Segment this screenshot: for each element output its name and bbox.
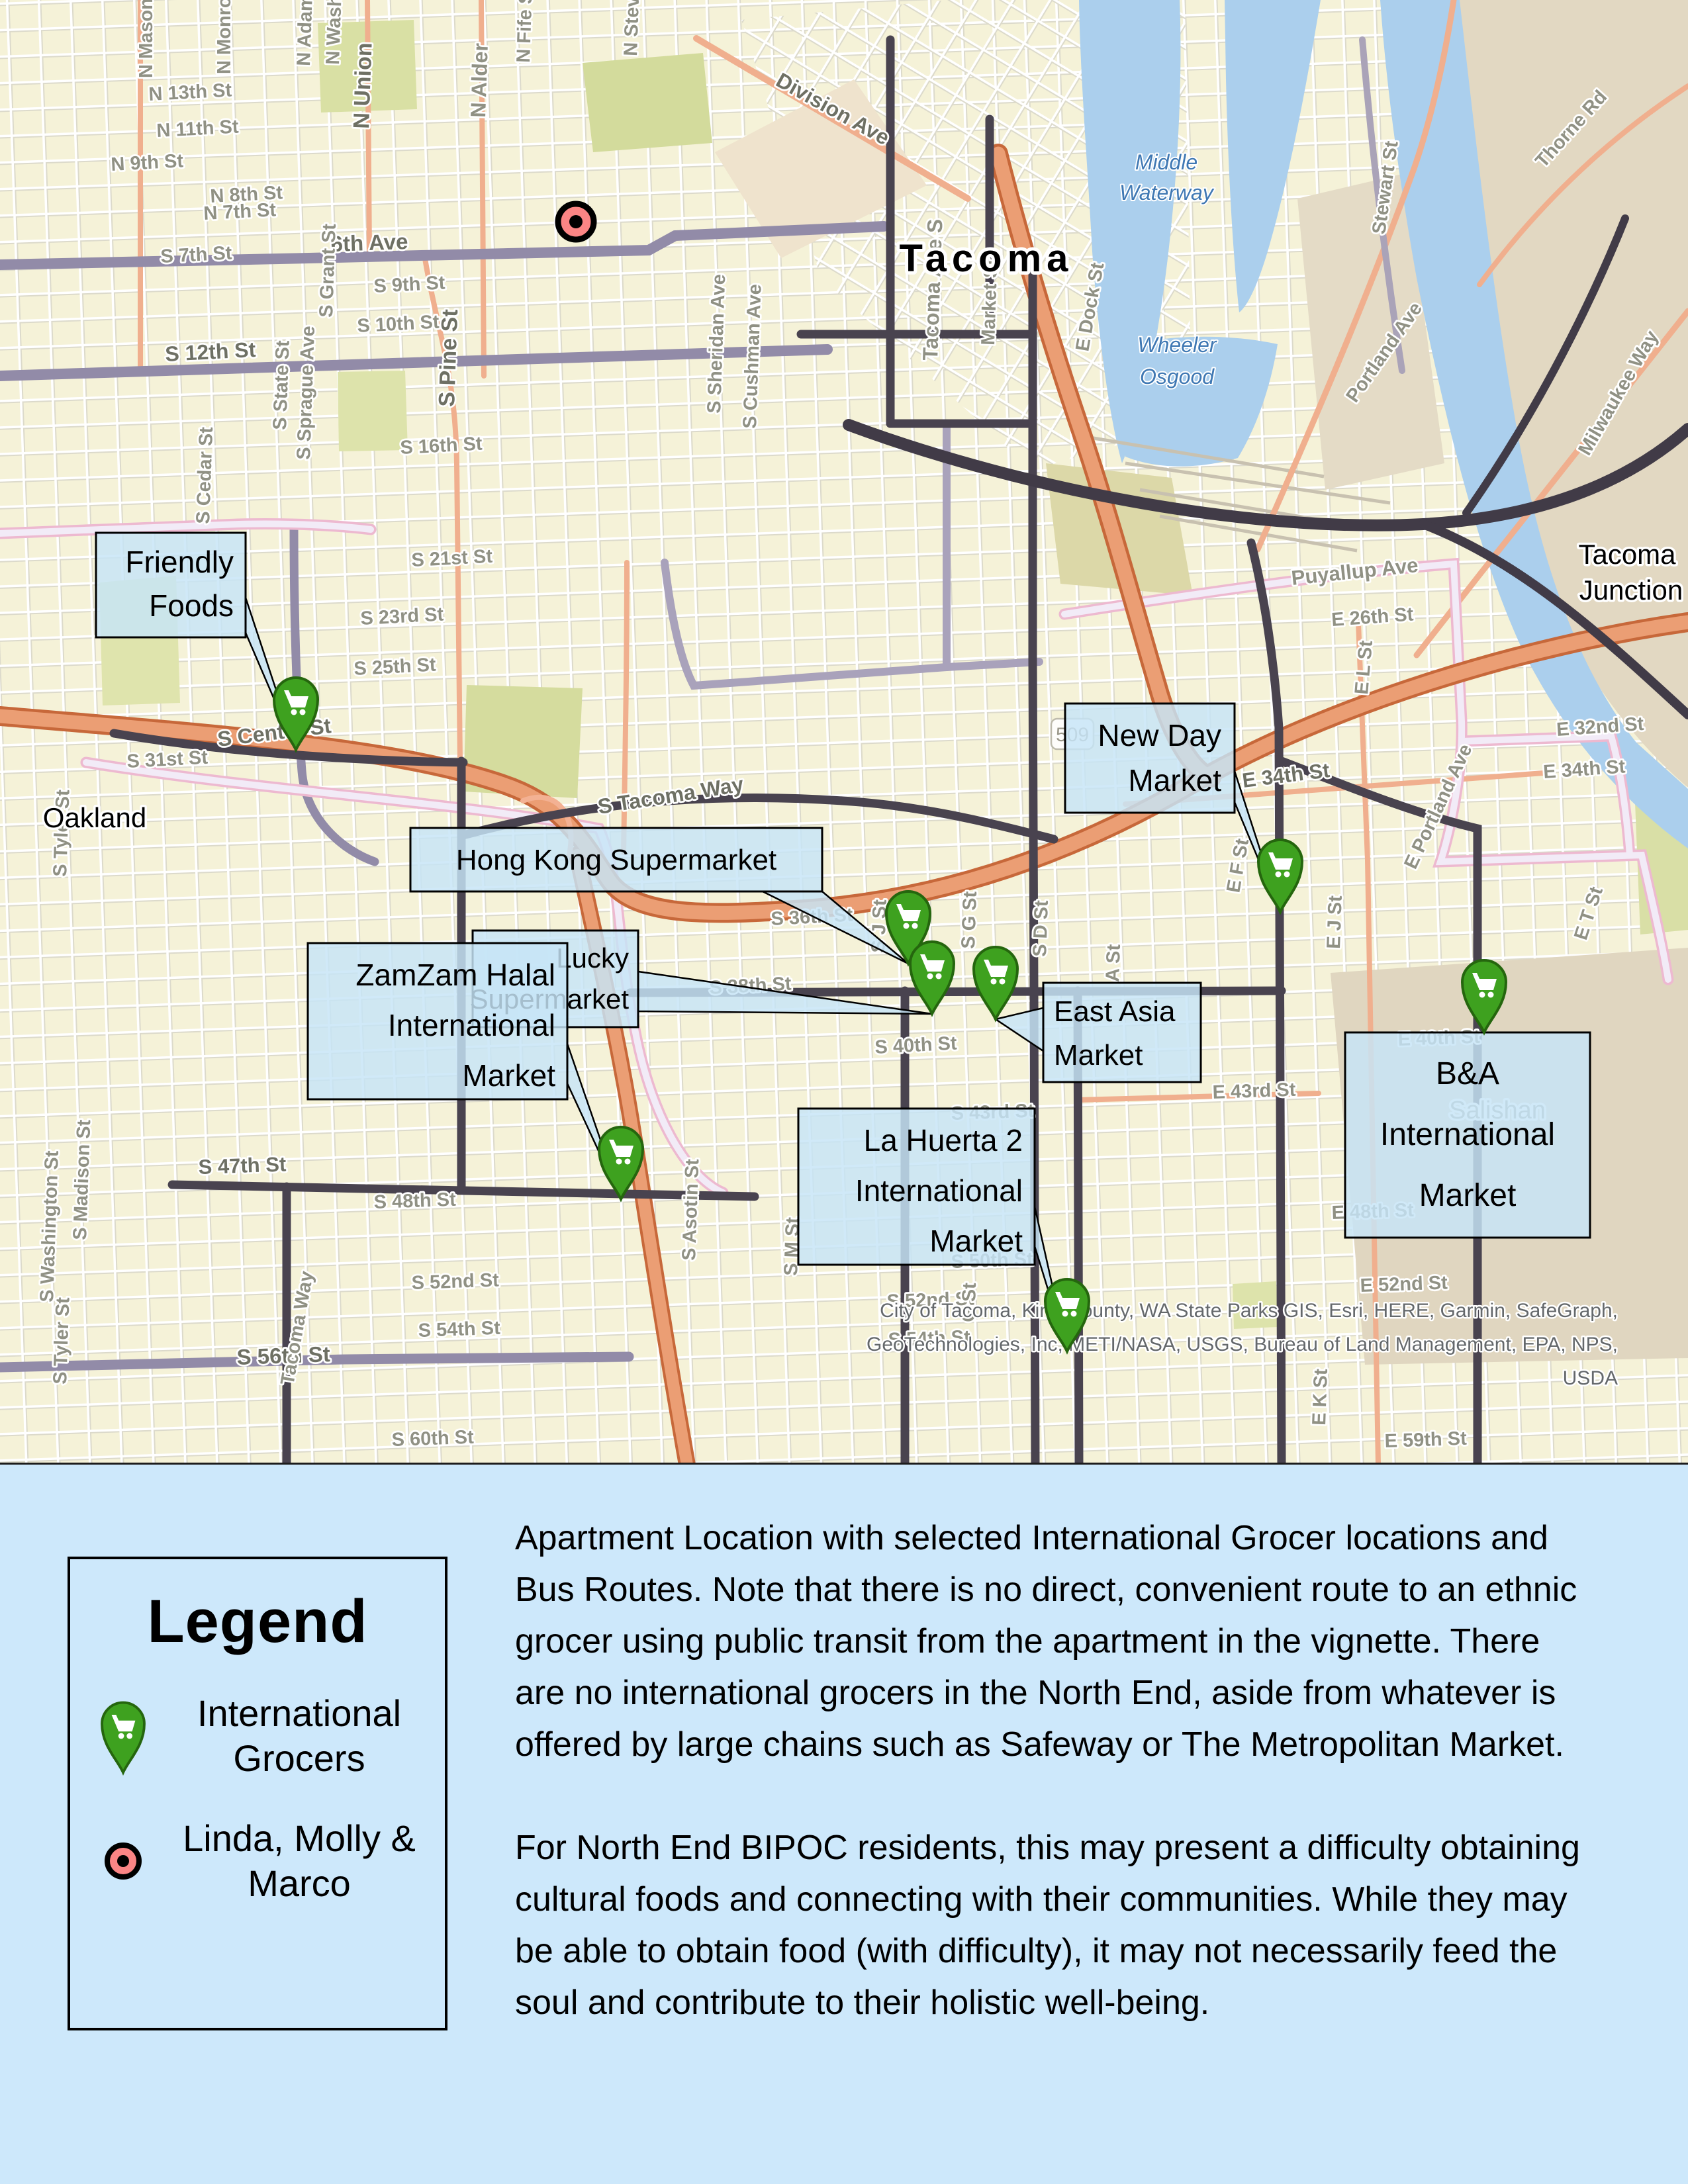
info-panel: Legend International Grocers Linda, Moll…: [0, 1465, 1688, 2182]
street-label: S G St: [958, 891, 981, 949]
caption-text: Apartment Location with selected Interna…: [515, 1512, 1587, 2080]
street-label: E J St: [1323, 895, 1346, 949]
street-label: E K St: [1309, 1368, 1332, 1426]
legend-item-label: International Grocers: [176, 1691, 422, 1782]
callout-label: Market: [1054, 1039, 1143, 1071]
street-label: E 43rd St: [1212, 1079, 1296, 1103]
street-label: S Grant St: [316, 223, 340, 318]
attribution-line: USDA: [1563, 1367, 1618, 1389]
callout-label: La Huerta 2: [864, 1123, 1023, 1158]
street-label: N Monroe: [214, 0, 235, 74]
callout-label: Market: [929, 1224, 1023, 1258]
street-label: N 7th St: [203, 199, 277, 224]
street-label: S 54th St: [418, 1318, 500, 1342]
apartment-marker-icon: [101, 1839, 145, 1883]
map-canvas[interactable]: 509 N 13th StN 11th StN 9th StN 8th StN …: [0, 0, 1688, 1465]
callout-label: New Day: [1098, 718, 1221, 752]
street-label: S 31st St: [126, 747, 209, 772]
street-label: S Madison St: [70, 1119, 95, 1240]
street-label: S 7th St: [160, 242, 233, 267]
street-label: S Asotin St: [679, 1158, 703, 1261]
street-label: N 11th St: [156, 116, 240, 142]
water-label: Wheeler: [1137, 333, 1217, 357]
callout-label: International: [855, 1173, 1023, 1208]
street-label: N Alder: [466, 42, 492, 118]
street-label: S 48th St: [373, 1189, 456, 1213]
caption-paragraph-2: For North End BIPOC residents, this may …: [515, 1822, 1587, 2028]
street-label: S State St: [269, 340, 294, 430]
attribution-line: GeoTechnologies, Inc, METI/NASA, USGS, B…: [867, 1334, 1618, 1355]
street-label: S 10th St: [357, 312, 440, 337]
callout-label: International: [388, 1008, 555, 1042]
callout-label: East Asia: [1054, 995, 1176, 1028]
street-label: 6th Ave: [330, 229, 408, 256]
legend-item-label: Linda, Molly & Marco: [176, 1816, 422, 1907]
callout-label: B&A: [1436, 1056, 1499, 1091]
place-label: Oakland: [43, 802, 146, 833]
street-label: E 59th St: [1384, 1428, 1467, 1452]
caption-paragraph-1: Apartment Location with selected Interna…: [515, 1512, 1587, 1770]
street-label: S Cedar St: [193, 426, 217, 524]
report-page: 509 N 13th StN 11th StN 9th StN 8th StN …: [0, 0, 1688, 2184]
legend-title: Legend: [147, 1587, 367, 1657]
street-label: E 52nd St: [1360, 1272, 1448, 1297]
callout-label: Market: [462, 1058, 555, 1093]
callout-label: Friendly: [125, 545, 234, 579]
street-label: N Mason: [136, 0, 157, 78]
street-label: N Fife St: [513, 0, 537, 63]
water-label: Osgood: [1140, 365, 1215, 388]
street-label: S Pine St: [434, 309, 463, 408]
tacoma-map: 509 N 13th StN 11th StN 9th StN 8th StN …: [0, 0, 1688, 1465]
street-label: A St: [1102, 944, 1125, 982]
callout-label: International: [1380, 1117, 1555, 1152]
water-label: Middle: [1135, 150, 1197, 174]
street-label: S 9th St: [373, 272, 446, 297]
callout-ba-international: B&AInternationalMarket: [1345, 1032, 1590, 1238]
street-label: S 52nd St: [411, 1269, 500, 1294]
street-label: S 12th St: [164, 338, 256, 366]
grocer-pin-icon: [91, 1694, 155, 1778]
street-label: N Union: [349, 42, 377, 130]
place-label: Tacoma: [1578, 539, 1676, 570]
legend-item-grocers: International Grocers: [70, 1691, 445, 1782]
street-label: S 47th St: [198, 1152, 287, 1179]
street-label: S 21st St: [411, 546, 493, 571]
water-label: Waterway: [1119, 181, 1215, 205]
street-label: N 13th St: [148, 79, 233, 105]
callout-label: Foods: [149, 588, 234, 623]
street-label: S Tyler St: [50, 1297, 74, 1385]
city-label: Tacoma: [900, 237, 1074, 280]
callout-label: Market: [1419, 1178, 1517, 1213]
callout-label: Hong Kong Supermarket: [456, 844, 776, 876]
apartment-marker: [558, 204, 594, 240]
street-label: N 9th St: [111, 150, 184, 175]
legend-item-apartment: Linda, Molly & Marco: [70, 1816, 445, 1907]
street-label: S D St: [1029, 899, 1053, 957]
street-label: S 25th St: [353, 655, 437, 680]
callout-label: ZamZam Halal: [355, 958, 555, 992]
street-label: S 23rd St: [360, 604, 445, 629]
street-label: S 60th St: [391, 1427, 474, 1451]
street-label: S 16th St: [400, 433, 483, 459]
street-label: N Adams: [293, 0, 317, 66]
place-label: Junction: [1579, 574, 1683, 606]
street-label: S 40th St: [874, 1033, 958, 1058]
attribution-line: City of Tacoma, King County, WA State Pa…: [880, 1300, 1618, 1322]
legend-box: Legend International Grocers Linda, Moll…: [68, 1557, 447, 2030]
callout-label: Market: [1128, 763, 1221, 797]
